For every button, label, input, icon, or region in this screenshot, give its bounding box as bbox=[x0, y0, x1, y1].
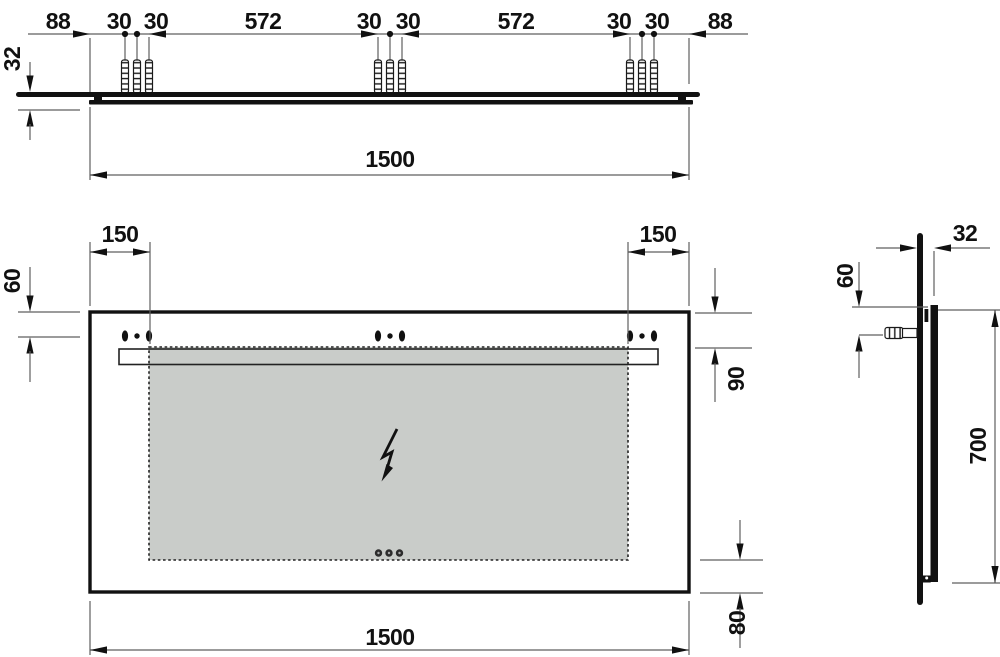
sensor-dots-icon bbox=[375, 549, 403, 556]
hanger-hook bbox=[94, 97, 102, 102]
wall-plug-icon bbox=[375, 60, 382, 93]
wall-profile bbox=[917, 233, 923, 605]
mirror-section bbox=[89, 100, 693, 105]
dim-label-top-572-2: 572 bbox=[481, 8, 551, 32]
drawing-linework bbox=[0, 0, 1000, 657]
wall-plug-icon bbox=[122, 60, 129, 93]
wall-plug-icons bbox=[122, 60, 658, 93]
mirror-profile bbox=[923, 305, 938, 583]
dim-60-side bbox=[852, 262, 928, 378]
dim-label-top-30-4: 30 bbox=[373, 8, 443, 32]
mounting-slot-icon bbox=[651, 330, 657, 341]
dim-label-top-30-2: 30 bbox=[121, 8, 191, 32]
dim-label-front-1500: 1500 bbox=[355, 624, 425, 648]
wall-plug-side-icon bbox=[885, 328, 917, 339]
front-view bbox=[18, 242, 763, 655]
wall-plug-icon bbox=[134, 60, 141, 93]
mounting-slot-icon bbox=[399, 330, 405, 341]
dim-label-front-60: 60 bbox=[0, 246, 23, 316]
dim-depth-32 bbox=[18, 62, 80, 140]
technical-drawing: 88 30 30 572 30 30 572 30 30 88 32 1500 … bbox=[0, 0, 1000, 657]
dim-label-side-32: 32 bbox=[930, 220, 1000, 244]
dim-label-front-150-left: 150 bbox=[85, 221, 155, 245]
mounting-slot-icon bbox=[375, 330, 381, 341]
mounting-hole-icon bbox=[639, 333, 644, 338]
dim-label-top-88-right: 88 bbox=[685, 8, 755, 32]
mounting-slot-icon bbox=[122, 330, 128, 341]
wall-plug-icon bbox=[399, 60, 406, 93]
hanger-hook bbox=[678, 97, 686, 102]
plug-leader-lines bbox=[125, 37, 654, 60]
dim-32-side bbox=[876, 244, 990, 296]
wall-plug-icon bbox=[387, 60, 394, 93]
wall-plug-icon bbox=[146, 60, 153, 93]
dim-60-left bbox=[18, 267, 80, 382]
dim-label-side-700: 700 bbox=[965, 411, 989, 481]
dim-label-side-60: 60 bbox=[832, 241, 856, 311]
wall-plug-icon bbox=[627, 60, 634, 93]
dim-label-top-88-left: 88 bbox=[23, 8, 93, 32]
dim-label-top-32: 32 bbox=[0, 24, 23, 94]
dim-label-front-80: 80 bbox=[724, 588, 748, 657]
mounting-hole-icon bbox=[387, 333, 392, 338]
dim-label-front-150-right: 150 bbox=[623, 221, 693, 245]
dim-label-front-90: 90 bbox=[723, 344, 747, 414]
dim-label-top-572-1: 572 bbox=[228, 8, 298, 32]
mounting-slot-icon bbox=[146, 330, 152, 341]
wall-plug-icon bbox=[639, 60, 646, 93]
wall-plug-icon bbox=[651, 60, 658, 93]
dim-label-top-1500: 1500 bbox=[355, 146, 425, 170]
hanger-hook bbox=[925, 309, 929, 322]
dim-label-top-30-6: 30 bbox=[622, 8, 692, 32]
mounting-hole-icon bbox=[134, 333, 139, 338]
wall-section bbox=[16, 92, 700, 97]
